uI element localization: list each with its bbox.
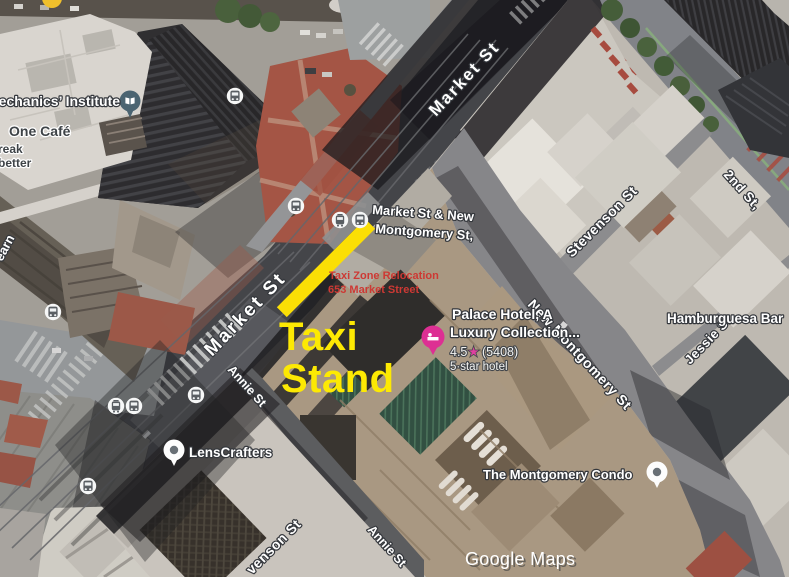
svg-text:Luxury Collection...: Luxury Collection... bbox=[450, 324, 580, 340]
svg-text:reak: reak bbox=[0, 142, 23, 156]
svg-text:Google Maps: Google Maps bbox=[465, 549, 575, 569]
svg-text:better: better bbox=[0, 156, 32, 170]
svg-text:4.5: 4.5 bbox=[450, 345, 467, 359]
svg-text:Palace Hotel, A: Palace Hotel, A bbox=[452, 306, 553, 322]
svg-text:Taxi: Taxi bbox=[279, 315, 358, 359]
svg-text:One Café: One Café bbox=[9, 123, 71, 139]
svg-text:The Montgomery Condo: The Montgomery Condo bbox=[483, 467, 633, 482]
svg-text:(5408): (5408) bbox=[482, 345, 518, 359]
svg-text:653 Market Street: 653 Market Street bbox=[328, 284, 419, 296]
svg-text:★: ★ bbox=[468, 345, 479, 359]
svg-text:Mechanics’ Institute: Mechanics’ Institute bbox=[0, 93, 120, 109]
svg-text:Stand: Stand bbox=[281, 357, 395, 401]
svg-text:5·star hotel: 5·star hotel bbox=[450, 361, 508, 373]
svg-text:Hamburguesa Bar: Hamburguesa Bar bbox=[667, 311, 784, 326]
svg-text:Taxi Zone Relocation: Taxi Zone Relocation bbox=[329, 270, 439, 282]
svg-text:LensCrafters: LensCrafters bbox=[189, 445, 272, 460]
